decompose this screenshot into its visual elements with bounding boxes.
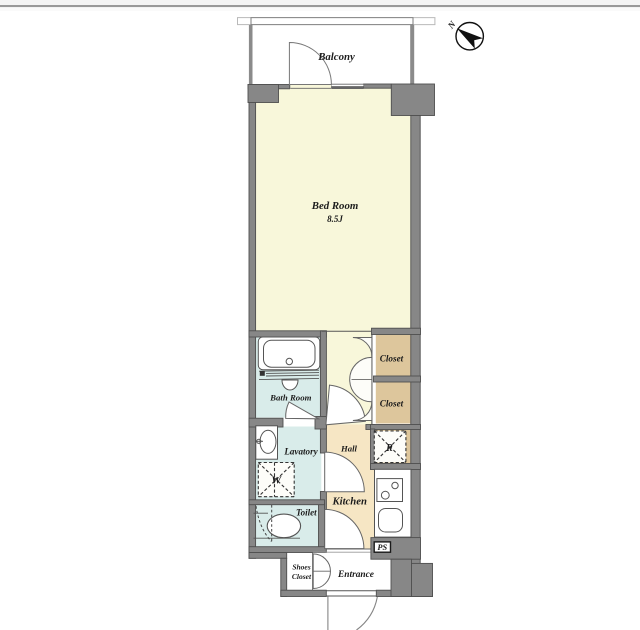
svg-text:8.5J: 8.5J bbox=[327, 214, 343, 224]
svg-text:PS: PS bbox=[377, 543, 387, 552]
svg-text:Bed Room: Bed Room bbox=[311, 200, 359, 212]
svg-text:Bath Room: Bath Room bbox=[269, 393, 311, 403]
svg-text:Kitchen: Kitchen bbox=[331, 495, 366, 507]
svg-text:Lavatory: Lavatory bbox=[283, 446, 318, 456]
svg-text:W: W bbox=[271, 475, 282, 487]
svg-text:Entrance: Entrance bbox=[337, 570, 374, 580]
svg-text:Closet: Closet bbox=[292, 572, 312, 581]
svg-text:Shoes: Shoes bbox=[292, 562, 310, 571]
svg-text:Hall: Hall bbox=[340, 443, 358, 453]
svg-text:Toilet: Toilet bbox=[296, 508, 317, 518]
svg-text:Closet: Closet bbox=[380, 399, 404, 409]
svg-text:Closet: Closet bbox=[380, 354, 404, 364]
svg-text:Balcony: Balcony bbox=[317, 51, 355, 63]
svg-text:R: R bbox=[385, 443, 393, 454]
